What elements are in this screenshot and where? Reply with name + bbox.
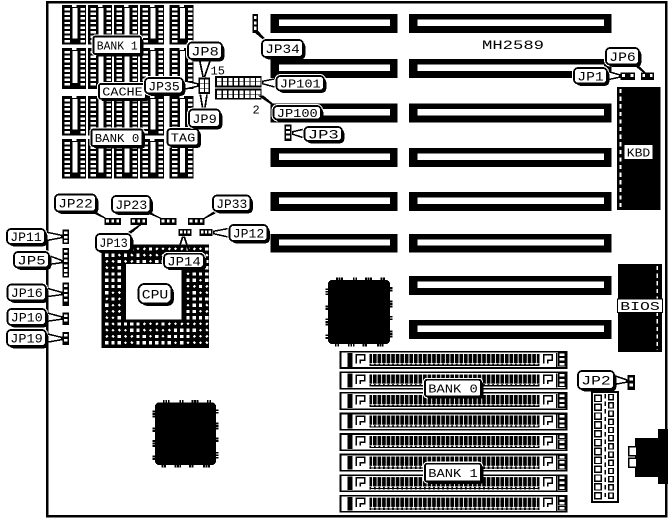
svg-text:JP34: JP34	[265, 42, 300, 57]
svg-text:JP12: JP12	[233, 227, 265, 242]
svg-text:JP101: JP101	[280, 78, 321, 92]
svg-text:JP11: JP11	[10, 230, 42, 245]
svg-text:2: 2	[253, 104, 260, 118]
svg-text:JP2: JP2	[581, 374, 611, 389]
svg-text:JP35: JP35	[148, 79, 180, 94]
svg-text:JP14: JP14	[167, 255, 201, 270]
svg-text:JP8: JP8	[191, 44, 219, 59]
svg-text:BANK 0: BANK 0	[428, 382, 478, 396]
svg-text:JP100: JP100	[277, 107, 318, 121]
svg-text:JP23: JP23	[115, 198, 147, 213]
svg-text:BANK 1: BANK 1	[428, 467, 478, 481]
svg-text:MH2589: MH2589	[482, 38, 544, 53]
svg-text:CPU: CPU	[142, 287, 169, 302]
svg-text:JP9: JP9	[192, 112, 217, 127]
svg-text:JP6: JP6	[609, 50, 636, 65]
svg-text:JP16: JP16	[11, 286, 43, 301]
svg-text:JP19: JP19	[10, 332, 43, 347]
svg-text:BANK 1: BANK 1	[97, 40, 138, 54]
svg-text:JP5: JP5	[17, 253, 46, 268]
svg-text:JP3: JP3	[308, 128, 339, 143]
svg-text:BANK 0: BANK 0	[95, 132, 140, 146]
svg-text:TAG: TAG	[171, 132, 196, 146]
svg-text:CACHE: CACHE	[102, 86, 143, 100]
svg-text:15: 15	[211, 65, 225, 79]
svg-text:BIOS: BIOS	[620, 300, 660, 314]
svg-text:JP33: JP33	[216, 197, 247, 212]
svg-text:KBD: KBD	[627, 146, 651, 160]
svg-text:JP22: JP22	[58, 197, 93, 212]
svg-text:JP13: JP13	[99, 236, 128, 251]
svg-text:JP10: JP10	[11, 311, 43, 326]
svg-text:JP1: JP1	[577, 69, 604, 84]
